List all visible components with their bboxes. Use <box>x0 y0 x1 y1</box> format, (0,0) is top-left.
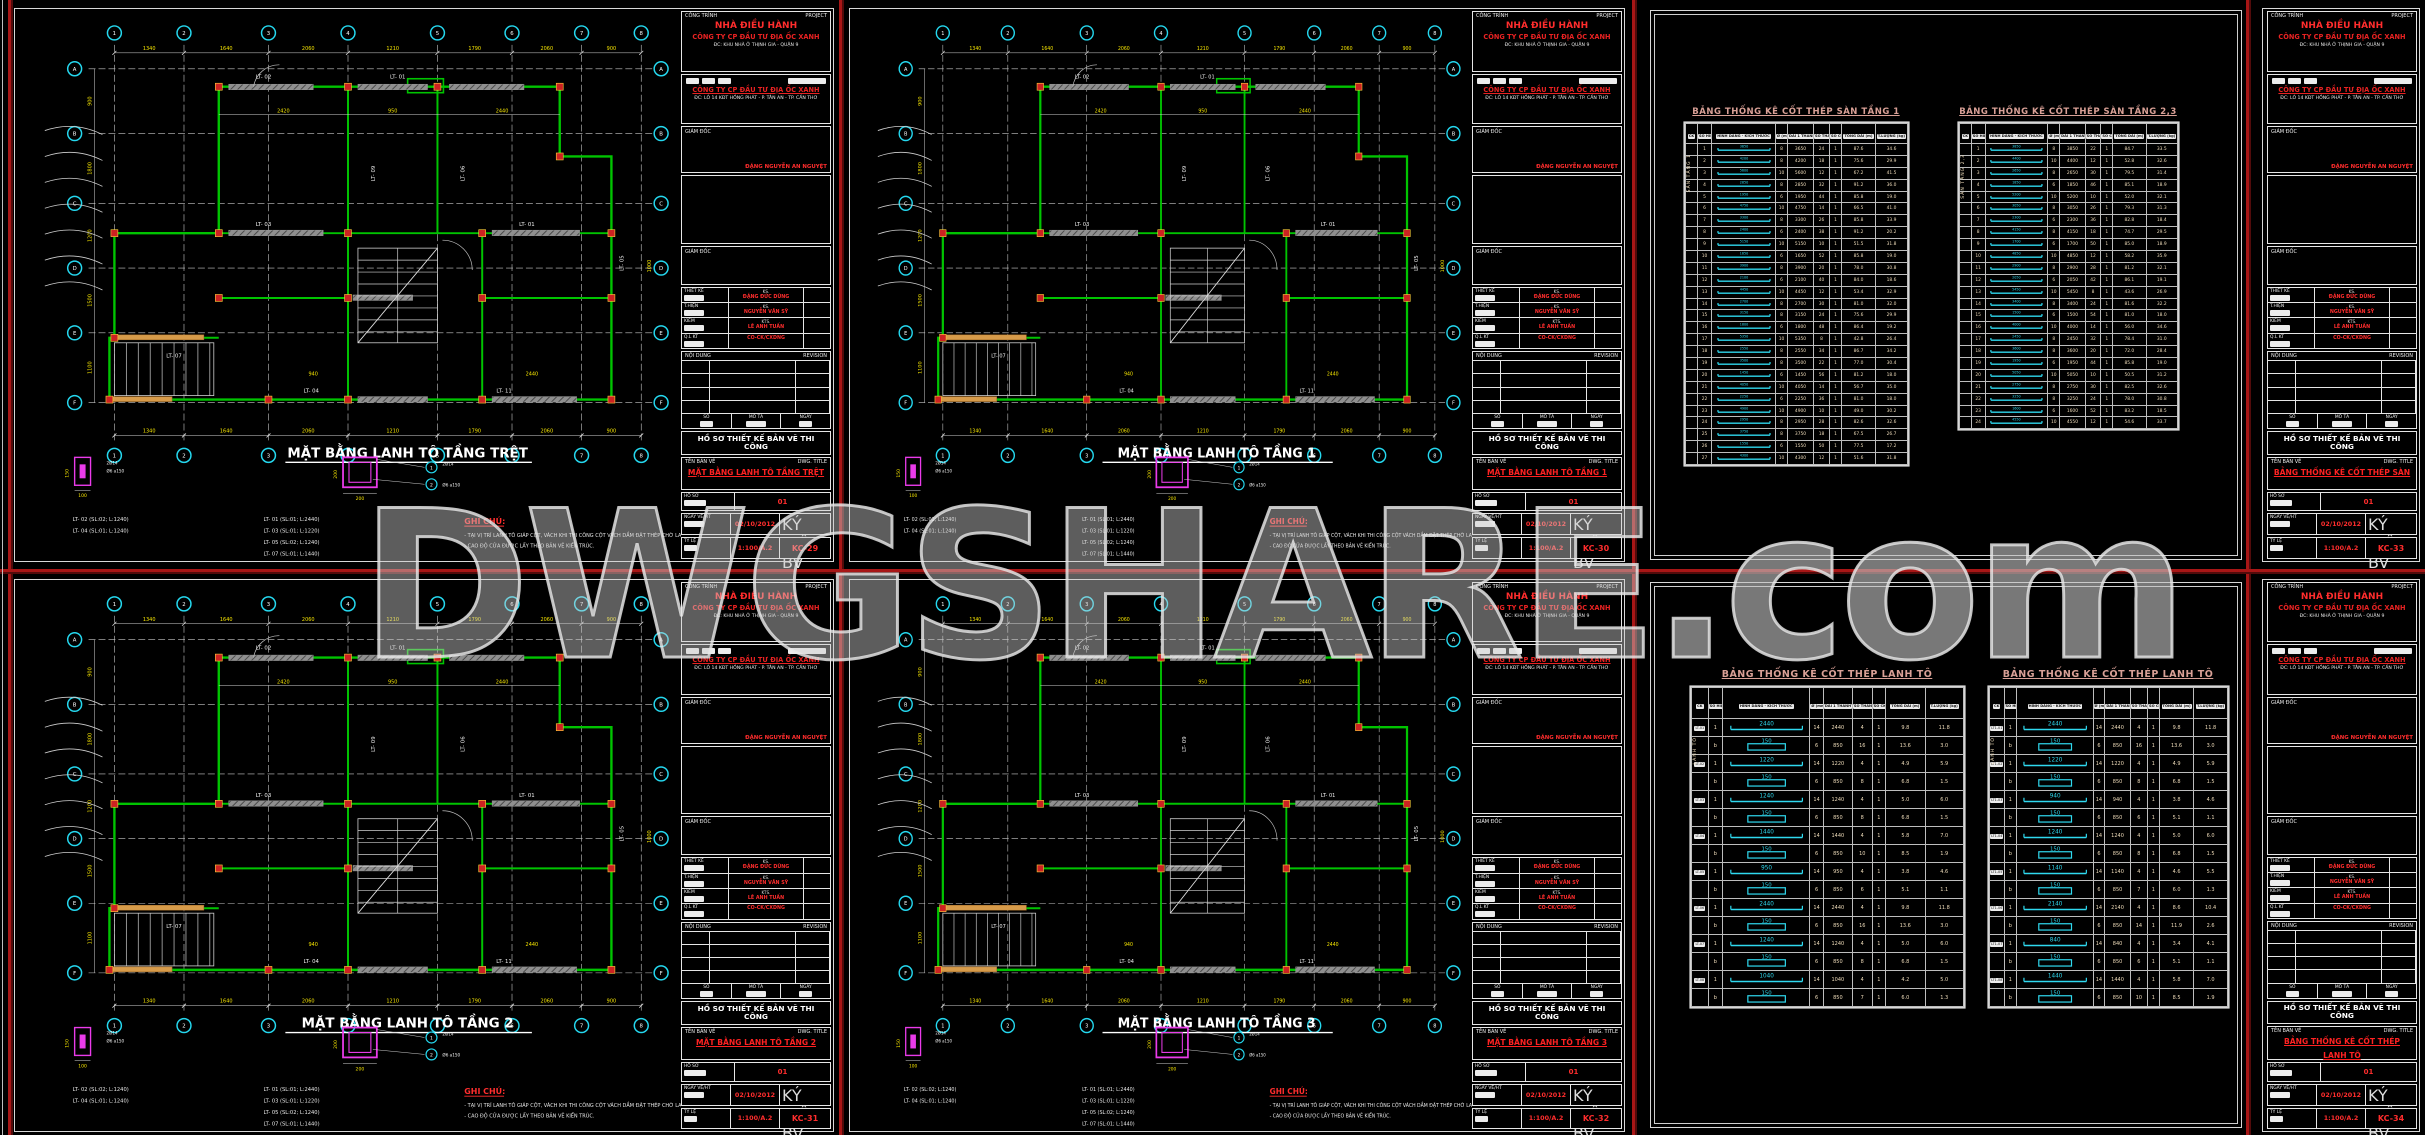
rebar-row: 14 2700 8270030181.032.0 <box>1686 298 1908 310</box>
svg-text:B: B <box>904 702 908 708</box>
staff-name: NGUYỄN VĂN SỸ <box>2315 309 2389 316</box>
rebar-row: b 150 6850816.81.5 <box>1692 809 1964 827</box>
svg-text:GHI CHÚ:: GHI CHÚ: <box>1270 1087 1308 1096</box>
svg-text:1200: 1200 <box>88 800 94 813</box>
svg-text:1440: 1440 <box>2048 974 2063 980</box>
bar-shape-glyph: 1600 <box>1986 406 2047 415</box>
bar-shape-glyph: 1700 <box>1986 239 2047 248</box>
bar-number-cell: 8 <box>1971 227 1985 239</box>
dwg-title-label: TÊN BẢN VẼ <box>685 459 715 466</box>
svg-text:2060: 2060 <box>540 428 553 434</box>
svg-text:6: 6 <box>1313 602 1316 608</box>
title-block: CÔNG TRÌNHPROJECT NHÀ ĐIỀU HÀNH CÔNG TY … <box>2267 11 2417 559</box>
bar-shape-cell: 3750 <box>1712 429 1776 441</box>
svg-text:C: C <box>659 201 663 207</box>
title-block: CÔNG TRÌNHPROJECT NHÀ ĐIỀU HÀNH CÔNG TY … <box>1472 582 1622 1129</box>
staff-role: T.HIỆN <box>1475 875 1517 880</box>
profile-label: HỒ SƠ <box>2270 1064 2318 1069</box>
stirrup-shape-glyph: 150 <box>1724 881 1809 896</box>
bar-number-cell: b <box>1708 845 1723 863</box>
svg-text:1100: 1100 <box>918 932 924 945</box>
staff-role: THIẾT KẾ <box>684 289 726 294</box>
svg-text:940: 940 <box>1124 372 1133 378</box>
layout-separator-vertical-0 <box>8 0 11 1135</box>
member-mark-cell <box>1686 310 1698 322</box>
titleblock-staff-table: THIẾT KẾ KS.ĐẶNG ĐỨC DŨNG T.HIỆN KS.NGUY… <box>2267 287 2417 349</box>
titleblock-staff-row: THIẾT KẾ KS.ĐẶNG ĐỨC DŨNG <box>2268 288 2416 303</box>
rebar-col-header: DÀI 1 THANH <box>2060 124 2086 144</box>
dwg-title-label-en: DWG. TITLE <box>2384 1028 2413 1035</box>
bar-shape-cell: 1950 <box>1712 191 1776 203</box>
staff-name: LÊ ANH TUẤN <box>1520 324 1594 331</box>
member-mark-cell <box>1686 322 1698 334</box>
svg-text:200: 200 <box>356 1066 365 1072</box>
svg-text:1240: 1240 <box>2048 830 2063 836</box>
svg-text:7: 7 <box>580 1024 583 1030</box>
bar-shape-cell: 5450 <box>1985 286 2048 298</box>
svg-text:2140: 2140 <box>2048 902 2063 908</box>
bar-shape-cell: 4450 <box>1712 286 1776 298</box>
svg-text:LT- 07 (SL:01; L:1440): LT- 07 (SL:01; L:1440) <box>264 552 320 558</box>
bar-shape-cell: 2550 <box>1712 346 1776 358</box>
profile-label: HỒ SƠ <box>1475 494 1523 499</box>
rebar-row: 13 4450 10445012153.432.9 <box>1686 286 1908 298</box>
titleblock-scale-row: TỶ LỆ 1:100/A.2 KC-30 <box>1472 537 1622 559</box>
rebar-row: LT-031 1240 141240415.06.0 <box>1692 791 1964 809</box>
bar-shape-glyph: 3600 <box>1986 346 2047 355</box>
svg-text:100: 100 <box>909 493 917 499</box>
svg-text:150: 150 <box>896 1039 902 1048</box>
bar-shape-glyph: 4850 <box>1986 251 2047 260</box>
svg-text:GHI CHÚ:: GHI CHÚ: <box>1270 517 1308 526</box>
titleblock-staff-row: T.HIỆN KS.NGUYỄN VĂN SỸ <box>2268 873 2416 888</box>
rebar-row: 26 1550 6155050177.517.2 <box>1686 441 1908 453</box>
member-mark-cell: LT-08 <box>1692 971 1709 989</box>
titleblock-drawing-title-box: TÊN BẢN VẼDWG. TITLE MẶT BẰNG LANH TÔ TẦ… <box>1472 457 1622 490</box>
signature-chip <box>2270 865 2290 871</box>
member-mark-cell <box>1686 334 1698 346</box>
rebar-row: 20 5050 10505010150.531.2 <box>1960 369 2178 381</box>
svg-text:GHI CHÚ:: GHI CHÚ: <box>464 515 505 526</box>
titleblock-staff-row: KIỂM KTS.LÊ ANH TUẤN <box>2268 318 2416 333</box>
floor-plan-drawing: 1122334455667788AABBCCDDEEFF134013401640… <box>850 580 1472 1131</box>
svg-text:LT- 04: LT- 04 <box>1119 388 1134 394</box>
svg-text:3: 3 <box>1085 602 1088 608</box>
bar-shape-glyph: 1500 <box>1986 310 2047 319</box>
staff-name: LÊ ANH TUẤN <box>1520 895 1594 902</box>
drawing-number: KC-31 <box>780 1109 830 1128</box>
svg-text:2Ø14: 2Ø14 <box>1249 461 1260 466</box>
steel-table-san-tang-23: CKSỐ HIỆUHÌNH DÁNG - KÍCH THƯỚCØ (mm)DÀI… <box>1959 123 2178 429</box>
rebar-row: 5 1950 6195044185.819.0 <box>1686 191 1908 203</box>
titleblock-director-box-2: GIÁM ĐỐC <box>1472 816 1622 855</box>
drawing-scale: 1:100/A.2 <box>731 538 780 558</box>
signature-chip <box>1475 865 1495 871</box>
svg-text:200: 200 <box>1168 1066 1176 1072</box>
bar-shape-glyph: 2140 <box>2018 899 2092 914</box>
signature-chip <box>684 865 704 871</box>
titleblock-owner-box: CÔNG TY CP ĐẦU TƯ ĐỊA ỐC XANH ĐC: LÔ 14 … <box>2267 74 2417 125</box>
svg-text:3900: 3900 <box>1739 264 1748 268</box>
bar-shape-cell: 2440 <box>1723 719 1810 737</box>
svg-text:1640: 1640 <box>220 617 233 623</box>
bar-shape-glyph: 3400 <box>1986 299 2047 308</box>
bar-number-cell: 23 <box>1971 405 1985 417</box>
floor-plan-drawing: 1122334455667788AABBCCDDEEFF134013401640… <box>15 580 681 1131</box>
svg-text:1240: 1240 <box>1759 938 1774 944</box>
bar-number-cell: 1 <box>2004 827 2017 845</box>
member-mark-cell <box>1686 227 1698 239</box>
svg-text:A: A <box>73 67 77 73</box>
member-mark-cell <box>1990 773 2005 791</box>
svg-text:2420: 2420 <box>277 109 290 115</box>
bar-shape-glyph: 2900 <box>1986 263 2047 272</box>
svg-text:100: 100 <box>909 1063 917 1069</box>
staff-role: Q.L KT <box>684 335 726 340</box>
scale-label: TỶ LỆ <box>2270 1110 2314 1115</box>
member-mark-cell <box>1686 453 1698 465</box>
staff-role: KIỂM <box>2270 889 2312 894</box>
bar-number-cell: b <box>2004 953 2017 971</box>
titleblock-scale-row: TỶ LỆ 1:100/A.2 KC-29 <box>681 537 831 559</box>
signature-chip <box>1475 310 1495 316</box>
svg-text:LT- 02 (SL:02; L:1240): LT- 02 (SL:02; L:1240) <box>904 517 957 523</box>
svg-text:940: 940 <box>308 372 317 378</box>
staff-role: THIẾT KẾ <box>2270 859 2312 864</box>
company-name: CÔNG TY CP ĐẦU TƯ ĐỊA ỐC XANH <box>2271 655 2413 665</box>
bar-number-cell: 1 <box>2004 971 2017 989</box>
profile-number: 01 <box>735 1063 830 1081</box>
bar-number-cell: b <box>1708 737 1723 755</box>
titleblock-director-box: GIÁM ĐỐC ĐẶNG NGUYỄN AN NGUYỆT <box>681 697 831 744</box>
rebar-col-header: Ø (mm) <box>1810 688 1823 719</box>
bar-shape-cell: 150 <box>1723 881 1810 899</box>
svg-text:1210: 1210 <box>1197 617 1209 623</box>
svg-text:B: B <box>73 702 77 708</box>
project-name: NHÀ ĐIỀU HÀNH <box>1476 591 1618 603</box>
rebar-row: LT1-041 1240 141240415.06.0 <box>1990 827 2228 845</box>
svg-text:LT- 02 (SL:02; L:1240): LT- 02 (SL:02; L:1240) <box>904 1087 957 1093</box>
svg-text:8: 8 <box>1433 1023 1436 1029</box>
svg-text:1: 1 <box>941 31 944 37</box>
member-mark-cell <box>1692 989 1709 1007</box>
stirrup-shape-glyph: 150 <box>1724 737 1809 752</box>
titleblock-date-row: NGÀY VẼ/HT 02/10/2012 KÝ HIỆU BV <box>681 513 831 535</box>
svg-text:2950: 2950 <box>1739 418 1748 422</box>
svg-text:1790: 1790 <box>1273 428 1285 434</box>
svg-text:LT- 11: LT- 11 <box>1300 959 1314 965</box>
svg-text:1340: 1340 <box>143 46 156 52</box>
svg-text:1100: 1100 <box>918 361 924 374</box>
title-block: CÔNG TRÌNHPROJECT NHÀ ĐIỀU HÀNH CÔNG TY … <box>681 582 831 1129</box>
bar-shape-cell: 2250 <box>1712 393 1776 405</box>
dwg-title-label: TÊN BẢN VẼ <box>2271 459 2301 466</box>
project-label-en: PROJECT <box>2391 13 2413 20</box>
svg-text:LT- 11: LT- 11 <box>496 389 511 395</box>
bar-shape-cell: 2400 <box>1712 227 1776 239</box>
bar-shape-cell: 4850 <box>1985 251 2048 263</box>
svg-text:1950: 1950 <box>1739 192 1748 196</box>
svg-text:MẶT BẰNG LANH TÔ TẦNG TRỆT: MẶT BẰNG LANH TÔ TẦNG TRỆT <box>287 442 528 461</box>
bar-number-cell: b <box>2004 845 2017 863</box>
titleblock-director-box: GIÁM ĐỐC ĐẶNG NGUYỄN AN NGUYỆT <box>2267 697 2417 744</box>
staff-name: ĐẶNG ĐỨC DŨNG <box>2315 294 2389 301</box>
rebar-row: LT1-081 1440 141440415.87.0 <box>1990 971 2228 989</box>
rebar-row: b 150 6850615.11.1 <box>1692 881 1964 899</box>
bar-shape-cell: 1700 <box>1985 239 2048 251</box>
svg-text:900: 900 <box>607 428 616 434</box>
svg-text:E: E <box>73 901 77 907</box>
svg-text:F: F <box>1452 400 1455 406</box>
titleblock-seal-box <box>681 175 831 243</box>
drawing-number: KC-33 <box>2366 538 2416 558</box>
titleblock-revision-table: NỘI DUNGREVISION SỐ MÔ TẢ NGÀY <box>681 922 831 1000</box>
svg-text:1800: 1800 <box>918 162 924 175</box>
svg-text:A: A <box>659 638 663 644</box>
member-mark-cell <box>1686 203 1698 215</box>
rebar-col-header: CK <box>1960 124 1972 144</box>
rebar-col-header: Ø (mm) <box>2048 124 2060 144</box>
project-address: ĐC: KHU NHÀ Ở THỊNH GIA - QUẬN 9 <box>685 42 827 50</box>
svg-text:7: 7 <box>1378 453 1381 459</box>
svg-text:- TẠI VỊ TRÍ LANH TÔ GIÁP CỘT,: - TẠI VỊ TRÍ LANH TÔ GIÁP CỘT, VÁCH KHI … <box>464 1101 681 1109</box>
staff-name: LÊ ANH TUẤN <box>729 324 803 331</box>
svg-text:2440: 2440 <box>1759 902 1774 908</box>
bar-shape-glyph: 2250 <box>1713 394 1775 403</box>
member-mark-cell: LT1-05 <box>1990 863 2005 881</box>
rebar-col-header: HÌNH DÁNG - KÍCH THƯỚC <box>1712 124 1776 144</box>
svg-text:GHI CHÚ:: GHI CHÚ: <box>464 1085 505 1096</box>
steel-table-title: BẢNG THỐNG KÊ CỐT THÉP LANH TÔ <box>2003 669 2214 680</box>
bar-shape-cell: 4150 <box>1985 227 2048 239</box>
bar-number-cell: b <box>2004 773 2017 791</box>
svg-text:2850: 2850 <box>1739 180 1748 184</box>
svg-text:1: 1 <box>113 1024 116 1030</box>
rebar-col-header: SỐ HIỆU <box>2004 688 2017 719</box>
rebar-row: b 150 6850615.11.1 <box>1990 809 2228 827</box>
bar-shape-cell: 1220 <box>1723 755 1810 773</box>
signature-chip <box>2270 880 2290 886</box>
svg-text:900: 900 <box>918 96 924 105</box>
rebar-col-header: SỐ HIỆU <box>1708 688 1723 719</box>
bar-number-cell: 3 <box>1971 167 1985 179</box>
bar-number-cell: b <box>1708 809 1723 827</box>
svg-text:2060: 2060 <box>540 617 553 623</box>
rebar-row: LT-051 950 14950413.84.6 <box>1692 863 1964 881</box>
bar-shape-cell: 150 <box>2017 917 2093 935</box>
investor-name: CÔNG TY CP ĐẦU TƯ ĐỊA ỐC XANH <box>685 603 827 613</box>
svg-text:Ø6 a150: Ø6 a150 <box>442 1052 460 1057</box>
titleblock-staff-row: T.HIỆN KS.NGUYỄN VĂN SỸ <box>1473 874 1621 889</box>
bar-number-cell: 1 <box>2004 719 2017 737</box>
member-mark-cell <box>1990 989 2005 1007</box>
rebar-row: 7 2300 6230036182.818.4 <box>1960 215 2178 227</box>
svg-text:1040: 1040 <box>1759 974 1774 980</box>
svg-text:LT- 02: LT- 02 <box>1075 75 1089 81</box>
bar-shape-glyph: 2050 <box>1986 275 2047 284</box>
member-mark-cell <box>1686 274 1698 286</box>
project-label: CÔNG TRÌNH <box>2271 584 2303 591</box>
titleblock-drawing-title-box: TÊN BẢN VẼDWG. TITLE BẢNG THỐNG KÊ CỐT T… <box>2267 457 2417 490</box>
svg-text:1210: 1210 <box>386 46 399 52</box>
bar-number-cell: 9 <box>1698 239 1712 251</box>
project-address: ĐC: KHU NHÀ Ở THỊNH GIA - QUẬN 9 <box>1476 42 1618 50</box>
svg-text:1640: 1640 <box>1041 46 1053 52</box>
titleblock-project-box: CÔNG TRÌNHPROJECT NHÀ ĐIỀU HÀNH CÔNG TY … <box>1472 582 1622 642</box>
bar-number-cell: 25 <box>1698 429 1712 441</box>
svg-text:200: 200 <box>333 1040 339 1049</box>
titleblock-owner-box: CÔNG TY CP ĐẦU TƯ ĐỊA ỐC XANH ĐC: LÔ 14 … <box>1472 74 1622 125</box>
svg-text:LT- 02 (SL:02; L:1240): LT- 02 (SL:02; L:1240) <box>73 1087 129 1093</box>
svg-text:1100: 1100 <box>88 932 94 945</box>
bar-number-cell: 11 <box>1971 262 1985 274</box>
svg-text:1220: 1220 <box>1759 758 1774 764</box>
svg-text:LT- 01: LT- 01 <box>519 222 534 228</box>
titleblock-staff-row: T.HIỆN KS.NGUYỄN VĂN SỸ <box>2268 303 2416 318</box>
rebar-row: 21 4050 10405014156.735.0 <box>1686 381 1908 393</box>
svg-text:950: 950 <box>388 109 397 115</box>
member-mark-cell: LT-01 <box>1692 719 1709 737</box>
member-mark-cell <box>1686 358 1698 370</box>
rebar-row: 4 2850 8285032191.236.0 <box>1686 179 1908 191</box>
titleblock-director-box: GIÁM ĐỐC ĐẶNG NGUYỄN AN NGUYỆT <box>681 126 831 173</box>
bar-number-cell: 8 <box>1698 227 1712 239</box>
dwg-title-label: TÊN BẢN VẼ <box>1476 459 1506 466</box>
svg-text:1340: 1340 <box>969 46 981 52</box>
svg-text:E: E <box>1452 901 1455 907</box>
svg-text:LT- 04 (SL:01; L:1240): LT- 04 (SL:01; L:1240) <box>904 528 957 534</box>
drawing-scale: 1:100/A.2 <box>731 1109 780 1128</box>
svg-text:2450: 2450 <box>2012 335 2021 339</box>
document-type: HỒ SƠ THIẾT KẾ BẢN VẼ THI CÔNG <box>681 1001 831 1024</box>
svg-text:1: 1 <box>430 1035 433 1041</box>
member-mark-cell <box>1960 393 1972 405</box>
bar-shape-cell: 2950 <box>1712 417 1776 429</box>
document-type: HỒ SƠ THIẾT KẾ BẢN VẼ THI CÔNG <box>2267 431 2417 455</box>
bar-shape-glyph: 3150 <box>1713 310 1775 319</box>
titleblock-staff-row: KIỂM KTS.LÊ ANH TUẤN <box>682 318 830 333</box>
member-mark-cell <box>1960 298 1972 310</box>
staff-name: CO-CK/CXDNG <box>729 335 803 342</box>
steel-table-title: BẢNG THỐNG KÊ CỐT THÉP LANH TÔ <box>1722 669 1933 680</box>
bar-shape-cell: 3050 <box>1985 203 2048 215</box>
svg-text:1000: 1000 <box>647 260 653 273</box>
rev-col-ngay: NGÀY <box>2386 985 2398 991</box>
rebar-col-header: HÌNH DÁNG - KÍCH THƯỚC <box>2017 688 2093 719</box>
bar-shape-glyph: 2440 <box>2018 719 2092 734</box>
project-label-en: PROJECT <box>805 13 827 20</box>
titleblock-staff-row: Q.L KT CO-CK/CXDNG <box>1473 904 1621 918</box>
date-label: NGÀY VẼ/HT <box>1475 515 1519 520</box>
project-label-en: PROJECT <box>2391 584 2413 591</box>
drawing-title: MẶT BẰNG LANH TÔ TẦNG TRỆT <box>685 466 827 480</box>
stirrup-shape-glyph: 150 <box>1724 917 1809 932</box>
svg-text:4000: 4000 <box>2012 323 2021 327</box>
revision-label: NỘI DUNG <box>685 924 711 930</box>
rebar-col-header: SỐ HIỆU <box>1971 124 1985 144</box>
svg-text:4: 4 <box>346 602 350 608</box>
titleblock-seal-box <box>681 746 831 814</box>
rev-col-so: SỐ <box>2289 985 2295 991</box>
svg-text:Ø6 a150: Ø6 a150 <box>1249 1052 1266 1057</box>
rebar-row: 13 5450 1054508143.626.9 <box>1960 286 2178 298</box>
rebar-col-header: SỐ THANH <box>2130 688 2147 719</box>
revision-label: NỘI DUNG <box>685 353 711 359</box>
svg-text:LT- 04 (SL:01; L:1240): LT- 04 (SL:01; L:1240) <box>904 1099 957 1105</box>
rebar-row: 19 3500 8350022177.030.4 <box>1686 358 1908 370</box>
rebar-row: 12 2100 6210040184.018.6 <box>1686 274 1908 286</box>
svg-text:2900: 2900 <box>2012 264 2021 268</box>
member-mark-cell <box>1960 369 1972 381</box>
bar-shape-cell: 3300 <box>1712 215 1776 227</box>
svg-text:1: 1 <box>941 453 944 459</box>
titleblock-date-row: NGÀY VẼ/HT 02/10/2012 KÝ HIỆU BV <box>681 1084 831 1106</box>
member-mark-cell <box>1686 215 1698 227</box>
bar-number-cell: 4 <box>1698 179 1712 191</box>
svg-text:3400: 3400 <box>2012 299 2021 303</box>
rebar-row: b 150 6850716.01.3 <box>1692 989 1964 1007</box>
profile-label: HỒ SƠ <box>1475 1064 1523 1069</box>
document-type: HỒ SƠ THIẾT KẾ BẢN VẼ THI CÔNG <box>681 431 831 455</box>
director-signature: ĐẶNG NGUYỄN AN NGUYỆT <box>745 735 827 741</box>
member-mark-cell: LT-07 <box>1692 935 1709 953</box>
bar-shape-cell: 1040 <box>1723 971 1810 989</box>
signature-chip <box>1475 325 1495 331</box>
bar-shape-cell: 150 <box>1723 953 1810 971</box>
bar-shape-glyph: 1220 <box>1724 755 1809 770</box>
staff-role: THIẾT KẾ <box>1475 289 1517 294</box>
signature-chip <box>2270 325 2290 331</box>
svg-text:3: 3 <box>267 453 270 459</box>
svg-text:6: 6 <box>1313 31 1316 37</box>
svg-text:940: 940 <box>308 942 317 948</box>
bar-shape-glyph: 3900 <box>1713 263 1775 272</box>
rebar-row: 3 2650 8265030179.531.4 <box>1960 167 2178 179</box>
svg-text:2440: 2440 <box>1759 722 1774 728</box>
svg-text:- TẠI VỊ TRÍ LANH TÔ GIÁP CỘT,: - TẠI VỊ TRÍ LANH TÔ GIÁP CỘT, VÁCH KHI … <box>1270 531 1472 539</box>
svg-text:2: 2 <box>430 482 433 488</box>
bar-shape-glyph: 3300 <box>1713 215 1775 224</box>
svg-text:2050: 2050 <box>2012 276 2021 280</box>
staff-name: ĐẶNG ĐỨC DŨNG <box>729 864 803 871</box>
bar-shape-glyph: 3650 <box>1713 144 1775 153</box>
svg-text:8: 8 <box>1433 453 1436 459</box>
rebar-col-header: CK <box>1990 688 2005 719</box>
svg-text:3300: 3300 <box>1739 216 1748 220</box>
bar-shape-cell: 4050 <box>1712 381 1776 393</box>
member-mark-cell <box>1960 203 1972 215</box>
bar-number-cell: 1 <box>2004 935 2017 953</box>
svg-text:1340: 1340 <box>969 999 981 1005</box>
rebar-row: b 150 68501018.51.9 <box>1692 845 1964 863</box>
bar-shape-glyph: 4550 <box>1986 417 2047 426</box>
svg-text:2440: 2440 <box>1299 679 1311 685</box>
director-label: GIÁM ĐỐC <box>2271 700 2297 706</box>
bar-number-cell: 2 <box>1698 155 1712 167</box>
bar-shape-glyph: 1220 <box>2018 755 2092 770</box>
staff-role: T.HIỆN <box>684 304 726 309</box>
project-address: ĐC: KHU NHÀ Ở THỊNH GIA - QUẬN 9 <box>685 613 827 621</box>
svg-text:E: E <box>73 331 77 337</box>
member-mark-cell: LT1-07 <box>1990 935 2005 953</box>
bar-shape-glyph: 1800 <box>1713 322 1775 331</box>
svg-text:LT- 02: LT- 02 <box>256 646 271 652</box>
rebar-col-header: TỔNG DÀI (m) <box>1842 124 1876 144</box>
svg-text:900: 900 <box>88 96 94 105</box>
svg-text:LT- 01: LT- 01 <box>1321 793 1335 799</box>
svg-text:900: 900 <box>1403 617 1412 623</box>
svg-text:LT- 03 (SL:01; L:1220): LT- 03 (SL:01; L:1220) <box>1082 1099 1135 1105</box>
